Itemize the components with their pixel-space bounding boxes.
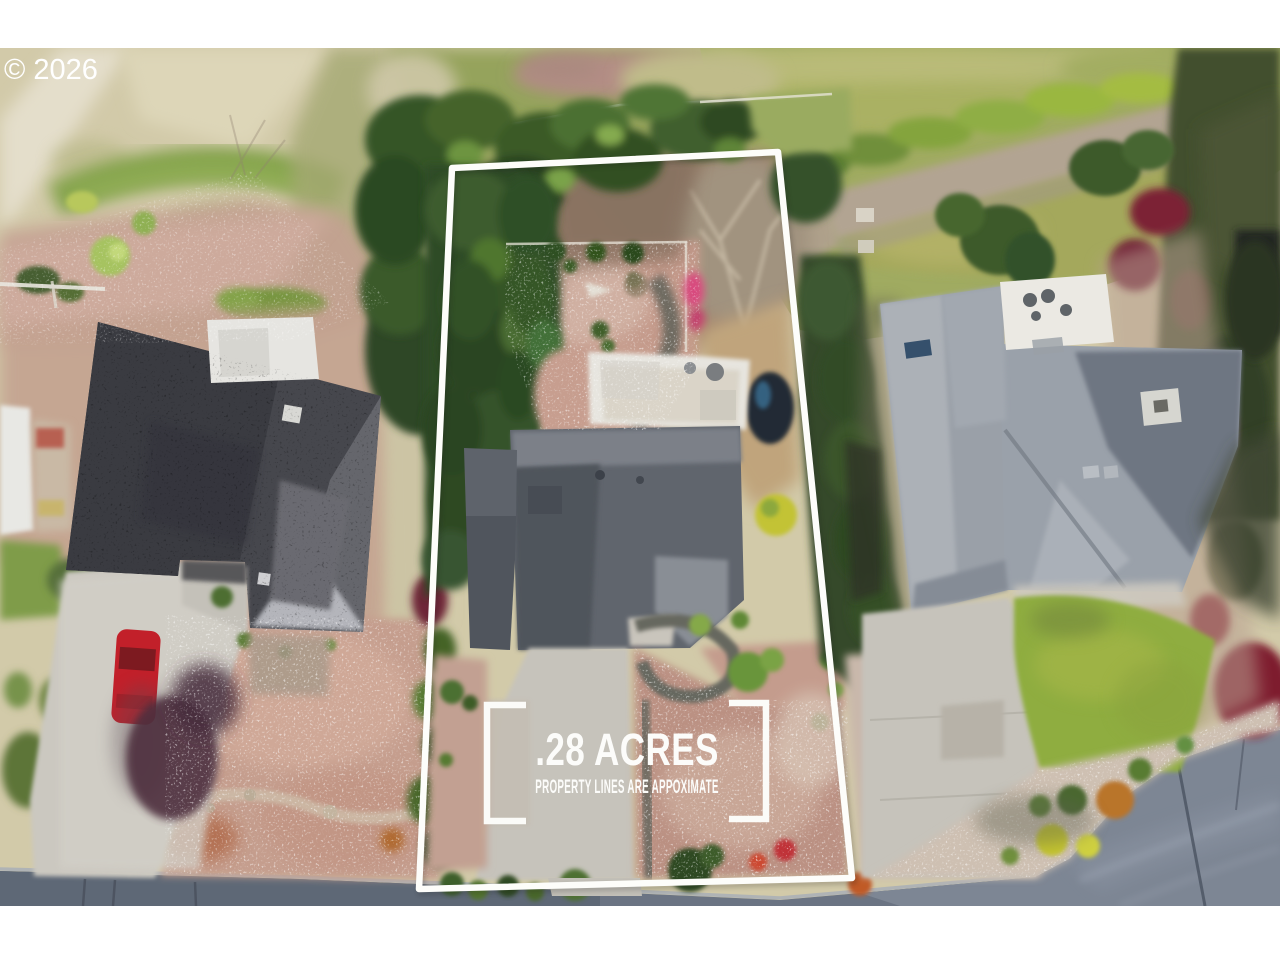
svg-text:© 2026: © 2026 xyxy=(4,54,98,86)
svg-text:PROPERTY LINES ARE APPOXIMATE: PROPERTY LINES ARE APPOXIMATE xyxy=(535,777,719,798)
svg-text:.28 ACRES: .28 ACRES xyxy=(535,724,719,775)
